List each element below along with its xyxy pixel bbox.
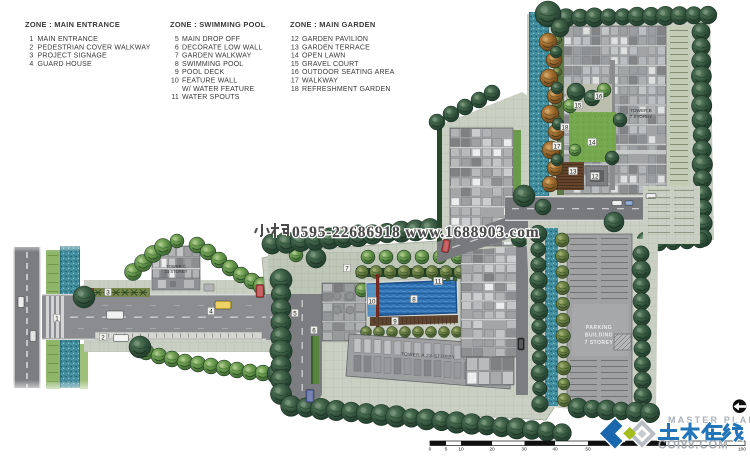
svg-text:PEDESTRIAN COVER WALKWAY: PEDESTRIAN COVER WALKWAY	[38, 44, 151, 51]
svg-text:15: 15	[291, 61, 299, 68]
svg-text:ZONE : MAIN GARDEN: ZONE : MAIN GARDEN	[290, 20, 375, 29]
svg-text:15: 15	[575, 102, 582, 109]
svg-text:3: 3	[106, 289, 110, 296]
svg-text:W/ WATER FEATURE: W/ WATER FEATURE	[182, 86, 254, 93]
svg-text:BUILDING: BUILDING	[585, 333, 613, 339]
svg-text:TOWER B: TOWER B	[630, 108, 651, 113]
svg-text:DECORATE LOW WALL: DECORATE LOW WALL	[182, 44, 262, 51]
svg-text:23 STOREY: 23 STOREY	[165, 269, 188, 274]
svg-text:2: 2	[29, 44, 33, 51]
svg-text:MAIN DROP OFF: MAIN DROP OFF	[182, 36, 240, 43]
svg-text:10: 10	[369, 298, 376, 305]
svg-text:GARDEN PAVILION: GARDEN PAVILION	[302, 36, 368, 43]
svg-text:7 STOREY: 7 STOREY	[585, 340, 614, 346]
svg-text:7 STOREY: 7 STOREY	[630, 114, 653, 119]
svg-text:8: 8	[412, 296, 416, 303]
svg-text:ZONE : MAIN ENTRANCE: ZONE : MAIN ENTRANCE	[25, 20, 120, 29]
svg-text:17: 17	[554, 143, 561, 150]
svg-text:14: 14	[291, 53, 299, 60]
svg-text:PROJECT SIGNAGE: PROJECT SIGNAGE	[38, 53, 108, 60]
svg-text:9: 9	[175, 69, 179, 76]
svg-text:WALKWAY: WALKWAY	[302, 78, 338, 85]
svg-text:7: 7	[175, 53, 179, 60]
svg-text:PARKING: PARKING	[586, 325, 612, 331]
svg-text:FEATURE WALL: FEATURE WALL	[182, 78, 237, 85]
svg-text:OPEN LAWN: OPEN LAWN	[302, 53, 346, 60]
svg-text:POOL DECK: POOL DECK	[182, 69, 225, 76]
svg-text:4: 4	[29, 61, 33, 68]
svg-text:6: 6	[312, 327, 316, 334]
svg-text:17: 17	[291, 78, 299, 85]
svg-text:5: 5	[445, 447, 448, 453]
svg-text:1: 1	[55, 315, 59, 322]
svg-text:16: 16	[596, 93, 603, 100]
svg-text:6: 6	[175, 44, 179, 51]
svg-text:11: 11	[435, 278, 442, 285]
svg-text:3: 3	[29, 53, 33, 60]
svg-text:GARDEN TERRACE: GARDEN TERRACE	[302, 44, 370, 51]
svg-text:OUTDOOR SEATING AREA: OUTDOOR SEATING AREA	[302, 69, 395, 76]
svg-text:0595-22686918 www.1688903.com: 0595-22686918 www.1688903.com	[292, 224, 540, 241]
svg-text:COI88.COM: COI88.COM	[658, 440, 728, 452]
svg-text:18: 18	[291, 86, 299, 93]
svg-text:1: 1	[29, 36, 33, 43]
svg-text:14: 14	[589, 139, 596, 146]
svg-text:ZONE : SWIMMING POOL: ZONE : SWIMMING POOL	[170, 20, 266, 29]
svg-text:4: 4	[209, 308, 213, 315]
svg-text:7: 7	[345, 265, 349, 272]
svg-text:5: 5	[175, 36, 179, 43]
svg-text:GARDEN WALKWAY: GARDEN WALKWAY	[182, 53, 252, 60]
svg-text:12: 12	[291, 36, 299, 43]
svg-text:8: 8	[175, 61, 179, 68]
svg-text:12: 12	[592, 173, 599, 180]
svg-text:2: 2	[101, 334, 105, 341]
svg-text:GUARD HOUSE: GUARD HOUSE	[38, 61, 92, 68]
svg-text:5: 5	[293, 310, 297, 317]
svg-text:18: 18	[562, 124, 569, 131]
svg-text:WATER SPOUTS: WATER SPOUTS	[182, 94, 240, 101]
svg-text:13: 13	[570, 168, 577, 175]
svg-text:REFRESHMENT GARDEN: REFRESHMENT GARDEN	[302, 86, 391, 93]
svg-text:50: 50	[585, 447, 591, 453]
svg-text:GRAVEL COURT: GRAVEL COURT	[302, 61, 359, 68]
svg-text:20: 20	[489, 447, 495, 453]
svg-text:SWIMMING POOL: SWIMMING POOL	[182, 61, 243, 68]
svg-text:10: 10	[458, 447, 464, 453]
svg-text:0: 0	[429, 447, 432, 453]
svg-text:30: 30	[521, 447, 527, 453]
svg-text:9: 9	[393, 318, 397, 325]
svg-text:11: 11	[171, 94, 179, 101]
svg-text:13: 13	[291, 44, 299, 51]
svg-text:40: 40	[552, 447, 558, 453]
svg-text:MAIN ENTRANCE: MAIN ENTRANCE	[38, 36, 99, 43]
svg-text:16: 16	[291, 69, 299, 76]
svg-text:100: 100	[738, 447, 746, 453]
svg-text:10: 10	[171, 78, 179, 85]
